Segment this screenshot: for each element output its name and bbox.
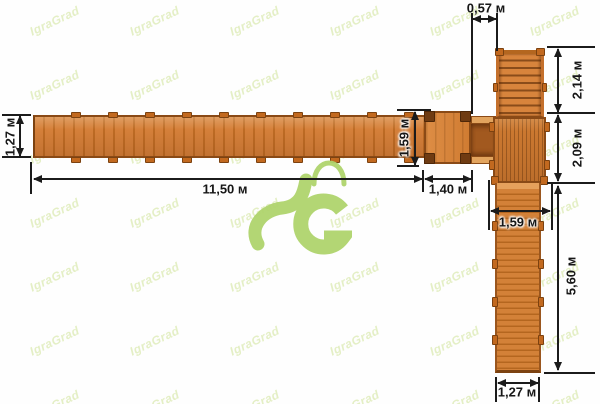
extension-line (547, 182, 595, 184)
watermark-text: IgraGrad (228, 67, 282, 102)
watermark-text: IgraGrad (328, 323, 382, 358)
platform-post (460, 111, 471, 122)
watermark-text: IgraGrad (328, 259, 382, 294)
watermark-text: IgraGrad (128, 67, 182, 102)
walkway-post (256, 112, 266, 118)
watermark-text: IgraGrad (328, 67, 382, 102)
dim-line-deck-length (557, 115, 559, 181)
tower-deck (493, 117, 546, 183)
watermark-text: IgraGrad (128, 195, 182, 230)
watermark-text: IgraGrad (28, 259, 82, 294)
dim-label-left-walkway-width: 1,27 м (3, 118, 18, 157)
deck-side-post (489, 122, 495, 132)
walkway-post (538, 297, 544, 307)
watermark-text: IgraGrad (328, 387, 382, 404)
walkway-post (219, 112, 229, 118)
watermark-text: IgraGrad (428, 67, 482, 102)
walkway-post (538, 259, 544, 269)
walkway-post (108, 157, 118, 163)
walkway-post (367, 112, 377, 118)
watermark-text: IgraGrad (428, 323, 482, 358)
dim-label-walkway-length: 11,50 м (202, 182, 247, 197)
dim-line-left-walkway-width (19, 116, 21, 156)
walkway-post (182, 157, 192, 163)
stair-side-post (493, 83, 498, 92)
dim-line-stairs-length (557, 49, 559, 112)
walkway-post (145, 157, 155, 163)
extension-line (471, 13, 473, 114)
watermark-text: IgraGrad (228, 3, 282, 38)
extension-line (30, 162, 32, 194)
dim-line-platform-depth (414, 112, 416, 165)
transfer-platform (424, 111, 471, 164)
watermark-text: IgraGrad (428, 387, 482, 404)
walkway-post (219, 157, 229, 163)
watermark-text: IgraGrad (128, 387, 182, 404)
watermark-text: IgraGrad (28, 195, 82, 230)
dim-label-platform-depth: 1,59 м (397, 119, 412, 158)
walkway-post (492, 259, 498, 269)
watermark-text: IgraGrad (128, 3, 182, 38)
watermark-text: IgraGrad (528, 3, 582, 38)
dim-label-lower-walkway-width-top: 1,59 м (499, 215, 538, 230)
watermark-text: IgraGrad (28, 3, 82, 38)
dim-label-stairs-length: 2,14 м (570, 61, 585, 100)
watermark-text: IgraGrad (228, 259, 282, 294)
dim-line-top-gap (473, 18, 496, 20)
walkway-post (71, 157, 81, 163)
dim-line-walkway-length (34, 178, 422, 180)
horizontal-walkway (33, 115, 425, 158)
dim-label-lower-walkway-width-bottom: 1,27 м (498, 385, 537, 400)
watermark-text: IgraGrad (28, 323, 82, 358)
watermark-text: IgraGrad (28, 387, 82, 404)
walkway-post (492, 297, 498, 307)
watermark-text: IgraGrad (328, 3, 382, 38)
dim-line-lower-walkway-width-top (491, 210, 550, 212)
logo-handle (314, 163, 344, 184)
walkway-post (293, 112, 303, 118)
watermark-text: IgraGrad (128, 259, 182, 294)
watermark-text: IgraGrad (428, 259, 482, 294)
walkway-post (492, 221, 498, 231)
platform-post (460, 153, 471, 164)
deck-side-post (544, 160, 550, 170)
dim-label-platform-width: 1,40 м (429, 182, 468, 197)
walkway-post (492, 335, 498, 345)
extension-line (551, 182, 553, 230)
watermark-text: IgraGrad (228, 387, 282, 404)
extension-line (488, 180, 490, 230)
dim-line-lower-walkway-length (557, 186, 559, 370)
walkway-post (538, 335, 544, 345)
dim-line-platform-width (425, 178, 471, 180)
walkway-post (538, 221, 544, 231)
stair-post (536, 48, 545, 56)
igragrad-logo (248, 146, 352, 258)
staircase (496, 50, 544, 117)
dim-label-top-gap: 0,57 м (467, 1, 506, 16)
playground-top-view-diagram: IgraGradIgraGradIgraGradIgraGradIgraGrad… (0, 0, 600, 404)
walkway-post (71, 112, 81, 118)
walkway-post (182, 112, 192, 118)
platform-post (424, 111, 435, 122)
walkway-post (145, 112, 155, 118)
deck-side-post (489, 160, 495, 170)
deck-side-post (544, 122, 550, 132)
extension-line (544, 372, 595, 374)
watermark-text: IgraGrad (128, 323, 182, 358)
logo-g-body (301, 201, 342, 247)
stair-side-post (542, 83, 547, 92)
watermark-text: IgraGrad (28, 67, 82, 102)
platform-post (424, 153, 435, 164)
watermark-text: IgraGrad (228, 323, 282, 358)
dim-label-lower-walkway-length: 5,60 м (564, 257, 579, 296)
dim-label-deck-length: 2,09 м (570, 129, 585, 168)
walkway-post (108, 112, 118, 118)
watermark-text: IgraGrad (428, 195, 482, 230)
walkway-post (330, 112, 340, 118)
walkway-post (367, 157, 377, 163)
